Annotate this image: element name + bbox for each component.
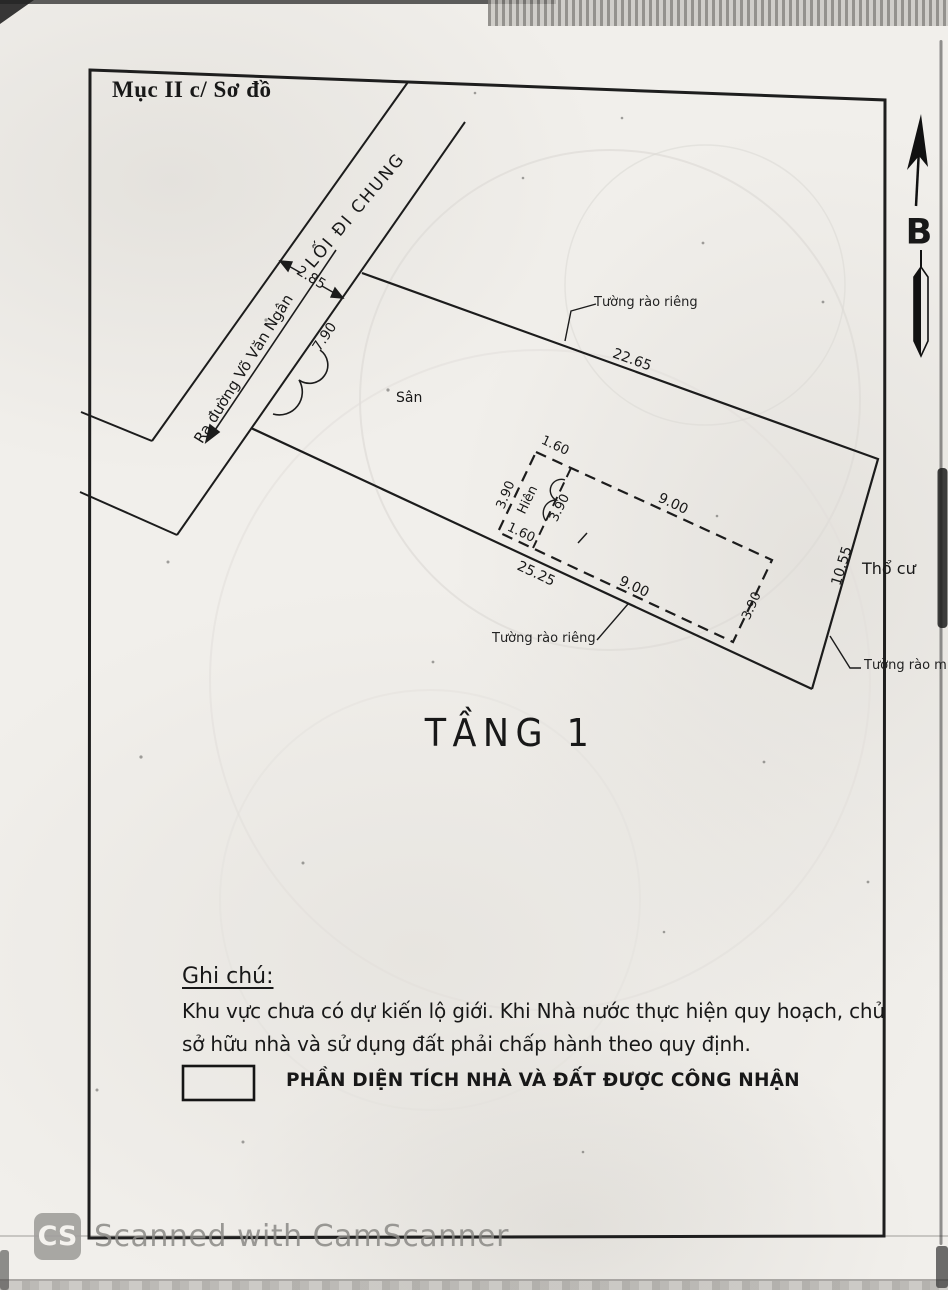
watermark-text: Scanned with CamScanner [94,1222,509,1252]
camscanner-logo-text: CS [38,1221,78,1252]
section-title: Mục II c/ Sơ đồ [112,78,272,101]
house-outline-dashed [498,452,772,642]
paper-speckles [96,92,870,1154]
fence-label-bottom: Tường rào riêng [492,632,596,645]
notes-line-2: sở hữu nhà và sử dụng đất phải chấp hành… [182,1034,751,1054]
plot-boundary [251,273,878,689]
scanned-page: Mục II c/ Sơ đồ LỐI ĐI CHUNG Ra đường Võ… [0,0,948,1290]
compass-north-label: B [906,216,933,251]
scan-right-edge-marks [0,0,948,1290]
notes-line-1: Khu vực chưa có dự kiến lộ giới. Khi Nhà… [182,1001,885,1021]
residential-land-label: Thổ cư [862,561,916,577]
fence-label-right: Tường rào mượn [864,659,948,672]
floor-title: TẦNG 1 [425,714,596,752]
legend-label: PHẦN DIỆN TÍCH NHÀ VÀ ĐẤT ĐƯỢC CÔNG NHẬN [286,1072,800,1091]
legend-box [183,1066,254,1100]
diagram-frame [89,70,885,1238]
fence-label-top: Tường rào riêng [594,296,698,309]
yard-label: Sân [396,391,422,405]
site-plan-linework [0,0,948,1290]
notes-heading: Ghi chú: [182,966,274,988]
camscanner-logo: CS [34,1213,81,1260]
